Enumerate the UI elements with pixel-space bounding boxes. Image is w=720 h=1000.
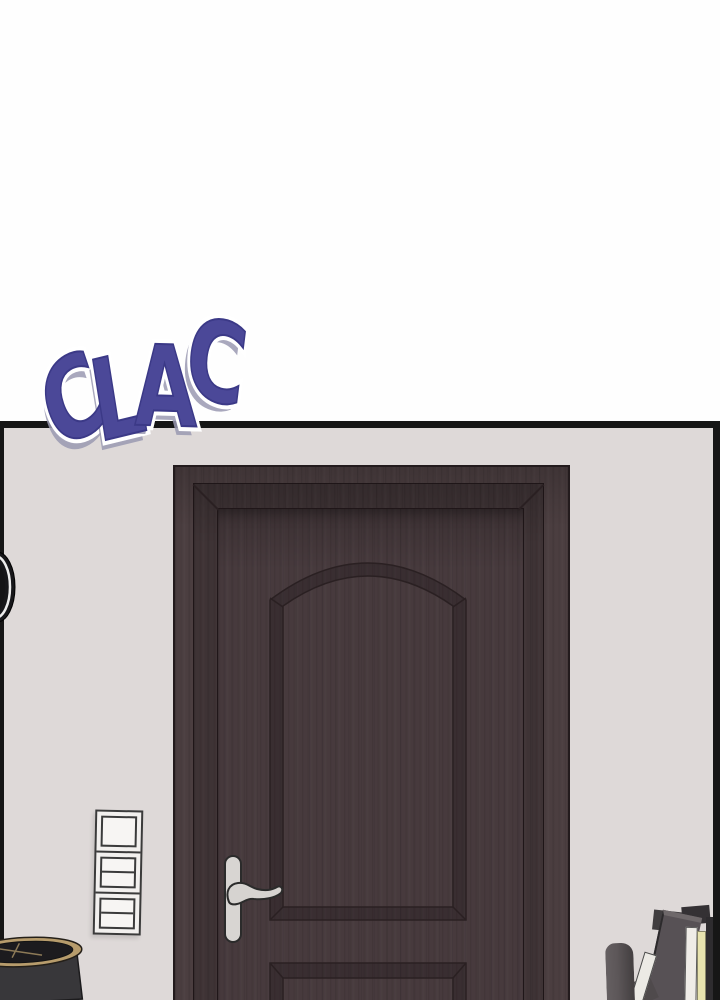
rocker-line bbox=[102, 871, 134, 874]
book-spine bbox=[605, 943, 635, 1000]
switch-module-middle bbox=[96, 853, 141, 895]
door-slab bbox=[217, 508, 524, 1000]
comic-panel-page: CLAC CLAC bbox=[0, 0, 720, 1000]
door-frame bbox=[173, 465, 570, 1000]
door-frame-bevel bbox=[193, 483, 544, 1000]
switch-rocker bbox=[99, 898, 136, 930]
light-switch-panel bbox=[93, 810, 144, 936]
panel-border-left bbox=[0, 421, 4, 1000]
book-spine bbox=[697, 931, 706, 1000]
rocker-line bbox=[101, 912, 133, 915]
book-spine bbox=[684, 927, 697, 1000]
book-stack bbox=[598, 903, 720, 1000]
switch-rocker bbox=[100, 857, 137, 889]
frame-miter-right bbox=[518, 484, 545, 511]
switch-module-top bbox=[96, 812, 141, 854]
switch-plate bbox=[101, 816, 138, 848]
panel-border-right bbox=[713, 421, 720, 1000]
switch-module-bottom bbox=[95, 894, 140, 934]
frame-miter-left bbox=[193, 484, 220, 511]
sfx-clac-text: CLAC bbox=[40, 334, 247, 460]
